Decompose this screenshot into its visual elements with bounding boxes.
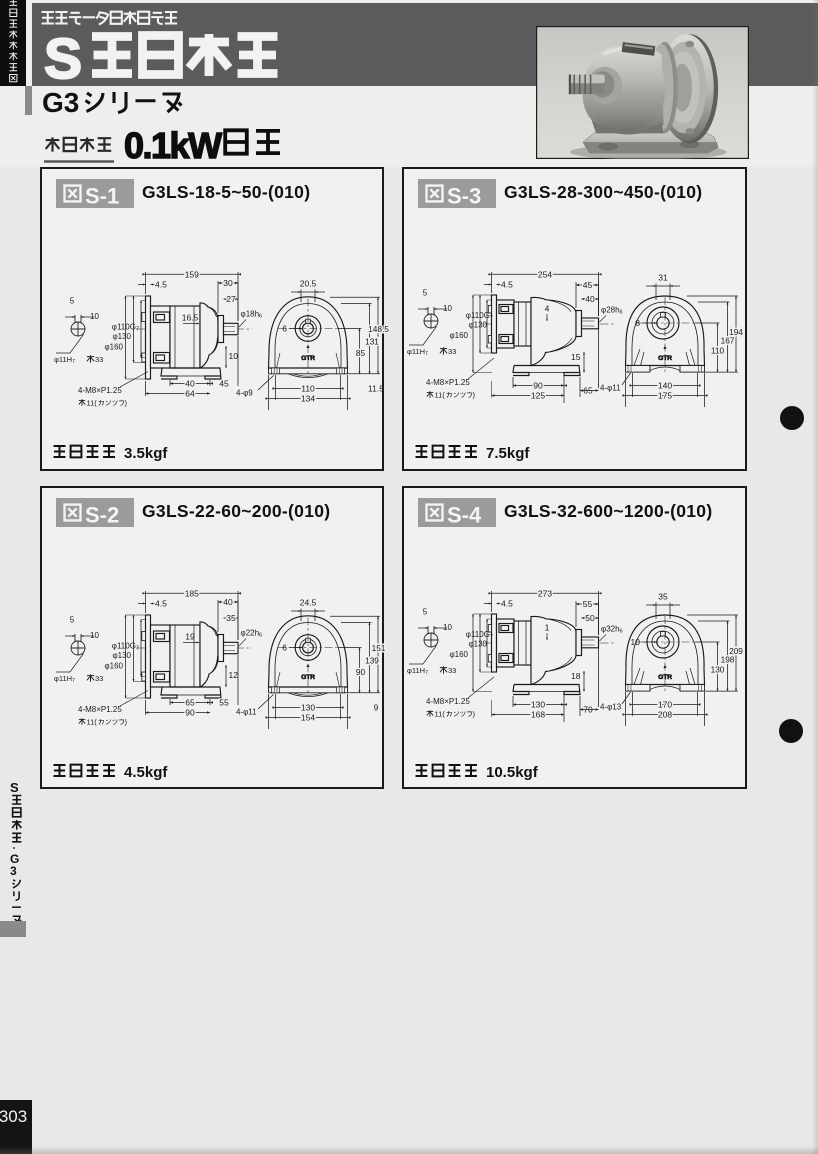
svg-text:4-M8×P1.25: 4-M8×P1.25 [78, 705, 122, 714]
svg-text:5: 5 [423, 289, 428, 298]
svg-text:φ130: φ130 [468, 640, 487, 649]
svg-text:11(: 11( [87, 718, 98, 727]
svg-text:4.5kgf: 4.5kgf [124, 764, 168, 781]
svg-text:8: 8 [635, 318, 640, 328]
svg-text:12: 12 [229, 670, 239, 680]
svg-text:S: S [10, 780, 19, 795]
svg-text:10: 10 [443, 623, 452, 632]
svg-text:4.5: 4.5 [501, 280, 513, 290]
svg-text:110: 110 [711, 346, 725, 356]
svg-text:0.1kW: 0.1kW [124, 125, 222, 166]
svg-text:90: 90 [533, 381, 543, 391]
svg-text:4-φ9: 4-φ9 [236, 389, 253, 398]
svg-text:): ) [473, 710, 476, 719]
svg-text:φ110G7: φ110G7 [466, 311, 493, 321]
svg-text:167: 167 [721, 336, 735, 346]
svg-text:9: 9 [374, 703, 379, 713]
svg-text:148.5: 148.5 [368, 324, 389, 334]
svg-text:10: 10 [443, 304, 452, 313]
svg-text:170: 170 [658, 700, 672, 710]
svg-text:130: 130 [711, 665, 725, 675]
svg-text:11(: 11( [87, 399, 98, 408]
svg-text:10: 10 [631, 637, 641, 647]
svg-text:19: 19 [185, 632, 195, 642]
svg-text:273: 273 [538, 588, 552, 598]
svg-text:140: 140 [658, 381, 672, 391]
svg-text:33: 33 [448, 666, 456, 675]
svg-text:4.5: 4.5 [155, 280, 167, 290]
svg-text:φ110G7: φ110G7 [112, 642, 139, 652]
svg-text:151: 151 [372, 643, 386, 653]
svg-text:20.5: 20.5 [300, 279, 317, 289]
svg-text:): ) [125, 718, 128, 727]
svg-text:55: 55 [583, 599, 593, 609]
svg-text:254: 254 [538, 269, 552, 279]
svg-text:27: 27 [226, 294, 236, 304]
svg-text:S: S [44, 27, 82, 85]
svg-text:185: 185 [185, 588, 199, 598]
svg-text:4-M8×P1.25: 4-M8×P1.25 [426, 697, 470, 706]
svg-text:64: 64 [185, 389, 195, 399]
svg-text:11.5: 11.5 [368, 384, 384, 394]
svg-text:4.5: 4.5 [501, 599, 513, 609]
svg-text:4-M8×P1.25: 4-M8×P1.25 [78, 386, 122, 395]
svg-text:φ11H7: φ11H7 [54, 355, 75, 365]
svg-text:φ130: φ130 [112, 651, 131, 660]
svg-text:24.5: 24.5 [300, 598, 317, 608]
svg-text:11(: 11( [435, 710, 446, 719]
svg-text:4-M8×P1.25: 4-M8×P1.25 [426, 378, 470, 387]
svg-text:5: 5 [70, 616, 75, 625]
svg-text:10: 10 [229, 351, 239, 361]
svg-text:198: 198 [721, 655, 735, 665]
svg-text:33: 33 [95, 355, 103, 364]
svg-text:φ160: φ160 [104, 662, 123, 671]
svg-text:90: 90 [356, 667, 366, 677]
svg-text:40: 40 [585, 294, 595, 304]
svg-text:4-φ11: 4-φ11 [600, 384, 621, 393]
svg-text:φ32h6: φ32h6 [601, 625, 623, 635]
svg-text:208: 208 [658, 710, 672, 720]
svg-text:40: 40 [223, 597, 233, 607]
svg-text:φ160: φ160 [449, 331, 468, 340]
svg-text:15: 15 [571, 352, 581, 362]
svg-text:φ160: φ160 [104, 343, 123, 352]
svg-text:φ11H7: φ11H7 [54, 674, 75, 684]
svg-text:10: 10 [90, 631, 99, 640]
svg-text:φ160: φ160 [449, 650, 468, 659]
svg-text:33: 33 [95, 674, 103, 683]
svg-text:45: 45 [583, 280, 593, 290]
svg-text:168: 168 [531, 710, 545, 720]
svg-text:16.5: 16.5 [182, 313, 199, 323]
svg-text:90: 90 [185, 708, 195, 718]
svg-text:125: 125 [531, 391, 545, 401]
svg-text:6: 6 [282, 324, 287, 334]
svg-text:): ) [473, 391, 476, 400]
svg-text:55: 55 [219, 698, 229, 708]
svg-text:φ130: φ130 [112, 332, 131, 341]
svg-text:4-φ13: 4-φ13 [600, 703, 622, 712]
svg-text:4: 4 [545, 304, 550, 314]
svg-text:130: 130 [301, 703, 315, 713]
svg-text:5: 5 [70, 297, 75, 306]
svg-text:φ110G7: φ110G7 [466, 630, 493, 640]
svg-text:10: 10 [90, 312, 99, 321]
svg-text:φ110G7: φ110G7 [112, 323, 139, 333]
svg-text:40: 40 [185, 379, 195, 389]
svg-text:φ28h6: φ28h6 [601, 306, 623, 316]
svg-text:134: 134 [301, 394, 315, 404]
svg-text:154: 154 [301, 713, 315, 723]
svg-text:G3: G3 [42, 87, 79, 118]
svg-text:3.5kgf: 3.5kgf [124, 445, 168, 462]
svg-text:4.5: 4.5 [155, 599, 167, 609]
svg-text:18: 18 [571, 671, 581, 681]
svg-text:45: 45 [219, 379, 229, 389]
svg-text:50: 50 [585, 613, 595, 623]
svg-text:131: 131 [365, 337, 379, 347]
svg-text:φ11H7: φ11H7 [407, 347, 428, 357]
svg-text:6: 6 [282, 643, 287, 653]
svg-text:31: 31 [658, 273, 668, 283]
svg-text:35: 35 [658, 592, 668, 602]
svg-text:159: 159 [185, 269, 199, 279]
svg-text:φ11H7: φ11H7 [407, 666, 428, 676]
svg-text:110: 110 [301, 384, 315, 394]
svg-text:1: 1 [545, 623, 550, 633]
svg-text:139: 139 [365, 656, 379, 666]
svg-text:11(: 11( [435, 391, 446, 400]
svg-text:175: 175 [658, 391, 672, 401]
svg-text:65: 65 [185, 698, 195, 708]
svg-text:33: 33 [448, 347, 456, 356]
svg-text:φ18h6: φ18h6 [241, 310, 263, 320]
svg-text:130: 130 [531, 700, 545, 710]
svg-text:): ) [125, 399, 128, 408]
svg-text:85: 85 [356, 348, 366, 358]
svg-text:10.5kgf: 10.5kgf [486, 764, 539, 781]
svg-text:φ130: φ130 [468, 321, 487, 330]
svg-text:φ22h6: φ22h6 [241, 629, 263, 639]
svg-text:35: 35 [226, 613, 236, 623]
svg-text:5: 5 [423, 608, 428, 617]
svg-text:30: 30 [223, 278, 233, 288]
svg-text:4-φ11: 4-φ11 [236, 708, 257, 717]
svg-text:7.5kgf: 7.5kgf [486, 445, 530, 462]
svg-text:3: 3 [10, 864, 17, 878]
